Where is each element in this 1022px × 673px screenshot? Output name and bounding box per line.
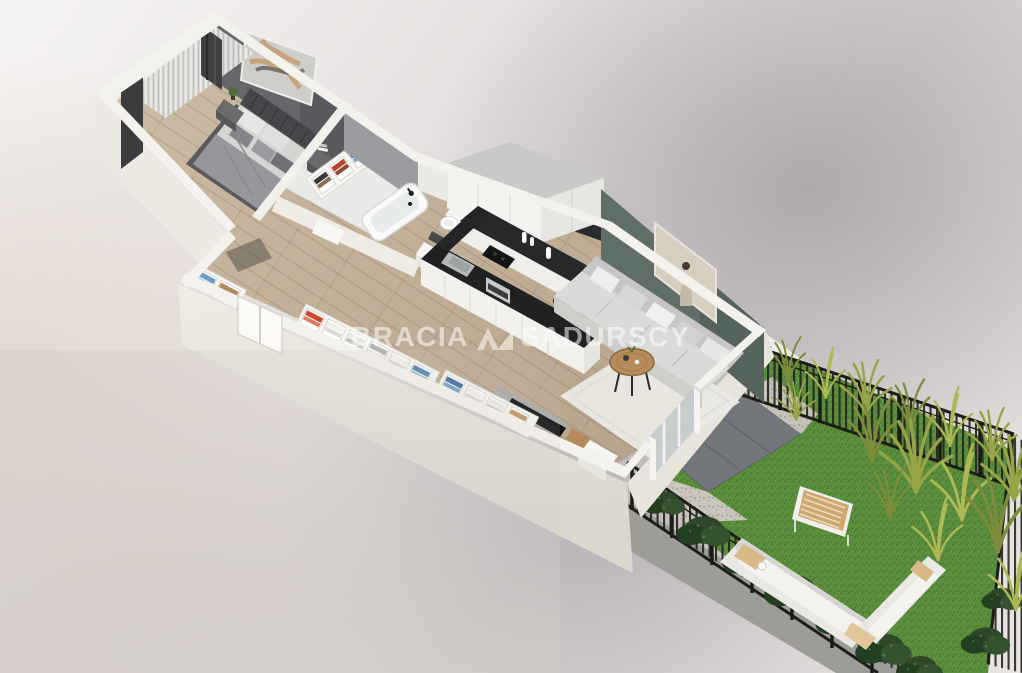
floor-plan-render: BRACIA SADURSCY [0,0,1022,673]
watermark-text-part2: SADURSCY [521,323,690,351]
background-fade [0,350,560,673]
watermark: BRACIA SADURSCY [351,323,690,351]
plant [229,88,238,97]
watermark-text-part1: BRACIA [351,323,469,351]
artwork-figure [682,262,690,270]
brand-triangles-logo-icon [477,326,513,350]
